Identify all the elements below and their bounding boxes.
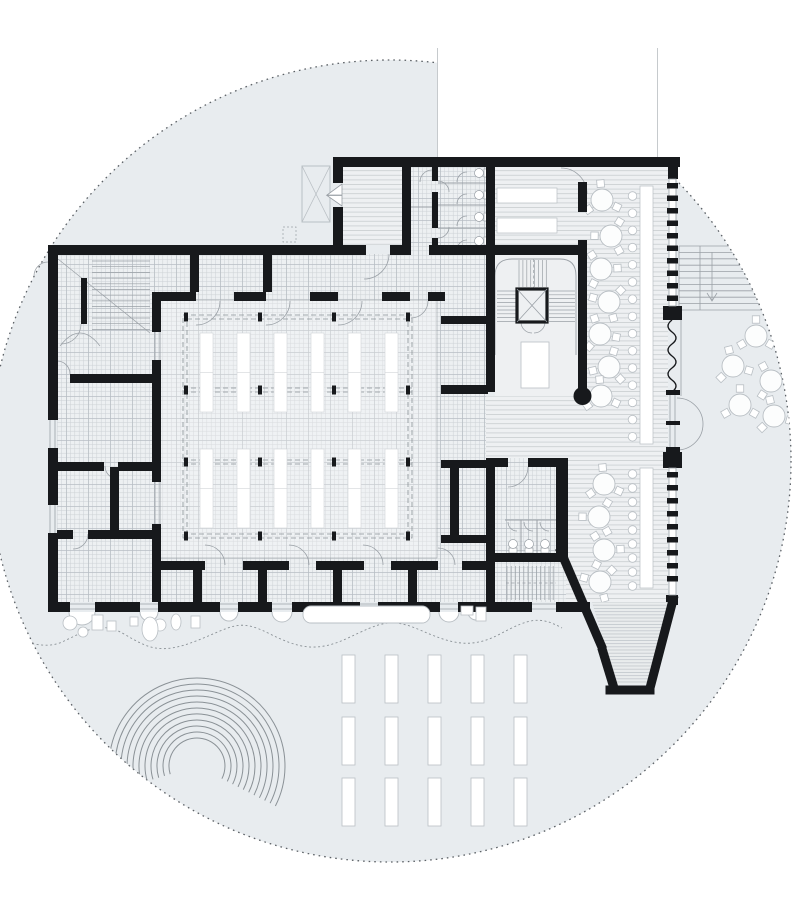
bar-stool xyxy=(628,512,637,521)
chair xyxy=(589,293,598,302)
bar-stool xyxy=(628,226,637,235)
table-top xyxy=(588,506,610,528)
bar-stool xyxy=(628,381,637,390)
bar-stool xyxy=(628,312,637,321)
mullion-block xyxy=(667,563,678,569)
mullion-block xyxy=(667,550,678,556)
mullion-block xyxy=(667,196,678,202)
chair xyxy=(612,333,621,342)
planter-rect xyxy=(342,778,355,826)
floor-plan-page xyxy=(0,0,812,898)
mullion-block xyxy=(667,208,678,214)
planter-rect xyxy=(514,717,527,765)
planter-rect xyxy=(471,655,484,703)
bar-counter-lower xyxy=(640,468,653,588)
planter-rect xyxy=(471,717,484,765)
bar-stool xyxy=(628,582,637,591)
bar-stool xyxy=(628,484,637,493)
bar-stool xyxy=(628,209,637,218)
mullion-block xyxy=(667,296,678,302)
structural-column xyxy=(332,458,336,467)
mullion-block xyxy=(667,511,678,517)
toilet-bowl xyxy=(475,169,484,178)
structural-column xyxy=(406,313,410,322)
structural-column xyxy=(258,458,262,467)
table-top xyxy=(593,539,615,561)
bar-stool xyxy=(628,295,637,304)
planter-rect xyxy=(514,655,527,703)
bar-stool xyxy=(628,540,637,549)
planter-rect xyxy=(342,655,355,703)
structural-column xyxy=(332,313,336,322)
planter-rect xyxy=(428,717,441,765)
table-top xyxy=(722,355,744,377)
structural-column xyxy=(406,458,410,467)
toilet-bowl xyxy=(475,237,484,246)
structural-column xyxy=(332,532,336,541)
chair xyxy=(591,232,599,240)
bar-stool xyxy=(628,329,637,338)
toilet-bowl xyxy=(541,540,550,549)
table-top xyxy=(598,356,620,378)
toilet-bowl xyxy=(475,213,484,222)
bar-stool xyxy=(628,470,637,479)
chair xyxy=(599,464,607,472)
table-top xyxy=(598,291,620,313)
chair xyxy=(580,573,589,582)
structural-column xyxy=(184,386,188,395)
bar-stool xyxy=(628,415,637,424)
outdoor-bench xyxy=(303,606,430,623)
chair xyxy=(744,366,753,375)
chair xyxy=(617,545,625,553)
planter-rect xyxy=(385,655,398,703)
chair xyxy=(614,264,622,272)
servery-counter-2 xyxy=(497,218,557,233)
structural-column xyxy=(258,532,262,541)
table-top xyxy=(745,325,767,347)
mullion-block xyxy=(667,283,678,289)
chair xyxy=(596,376,604,384)
chair xyxy=(597,180,605,188)
planter-rect xyxy=(428,778,441,826)
floor-room-a-deck xyxy=(342,167,402,245)
chair xyxy=(609,313,618,322)
chair xyxy=(784,378,792,386)
bar-stool xyxy=(628,278,637,287)
bar-stool xyxy=(628,261,637,270)
table-top xyxy=(591,189,613,211)
mullion-block xyxy=(667,472,678,478)
table-top xyxy=(729,394,751,416)
chair xyxy=(609,347,618,356)
structural-column xyxy=(406,532,410,541)
mullion-block xyxy=(667,524,678,530)
bar-stool xyxy=(628,568,637,577)
mullion-block xyxy=(667,271,678,277)
table-top xyxy=(600,225,622,247)
bar-stool xyxy=(628,243,637,252)
mullion-block xyxy=(667,221,678,227)
chair xyxy=(725,346,734,355)
structural-column xyxy=(184,458,188,467)
bar-stool xyxy=(628,498,637,507)
bar-stool xyxy=(628,192,637,201)
toilet-bowl xyxy=(475,191,484,200)
mullion-block xyxy=(667,498,678,504)
mullion-block xyxy=(667,246,678,252)
chair xyxy=(766,396,775,405)
toilet-bowl xyxy=(509,540,518,549)
planter-rect xyxy=(385,778,398,826)
table-top xyxy=(590,385,612,407)
chair xyxy=(752,316,759,323)
mullion-block xyxy=(667,183,678,189)
mullion-block xyxy=(667,258,678,264)
chair xyxy=(736,385,743,392)
planter-rect xyxy=(428,655,441,703)
bar-stool xyxy=(628,554,637,563)
structural-column xyxy=(258,386,262,395)
structural-column xyxy=(406,386,410,395)
bar-stool xyxy=(628,364,637,373)
bar-stool xyxy=(628,398,637,407)
mullion-block xyxy=(667,485,678,491)
bar-stool xyxy=(628,526,637,535)
planter-rect xyxy=(514,778,527,826)
floor-right-block xyxy=(486,458,566,602)
toilet-bowl xyxy=(525,540,534,549)
planter-rect xyxy=(385,717,398,765)
planter-rect xyxy=(342,717,355,765)
reception-desk xyxy=(521,342,549,388)
table-top xyxy=(593,473,615,495)
chair xyxy=(600,593,609,602)
site-road-band xyxy=(437,0,658,162)
chair xyxy=(579,513,587,521)
bar-counter-upper xyxy=(640,186,653,444)
table-top xyxy=(763,405,785,427)
planter-rect xyxy=(471,778,484,826)
floor-plan-canvas xyxy=(0,0,812,898)
structural-column xyxy=(258,313,262,322)
bar-stool xyxy=(628,347,637,356)
table-top xyxy=(589,571,611,593)
mullion-block xyxy=(667,537,678,543)
bar-stool xyxy=(628,433,637,442)
structural-column xyxy=(184,532,188,541)
structural-column xyxy=(332,386,336,395)
structural-column xyxy=(184,313,188,322)
mullion-block xyxy=(667,576,678,582)
mullion-block xyxy=(667,233,678,239)
table-top xyxy=(590,258,612,280)
floor-wing-lobby-wc xyxy=(402,167,486,255)
table-top xyxy=(760,370,782,392)
chair xyxy=(588,366,597,375)
table-top xyxy=(589,323,611,345)
servery-counter-1 xyxy=(497,188,557,203)
